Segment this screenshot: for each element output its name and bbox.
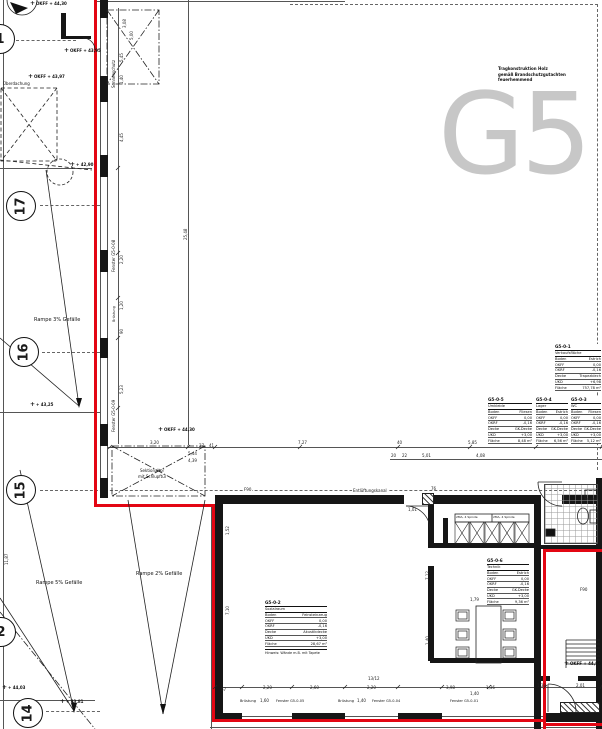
- dimension-label: 3,08: [123, 19, 128, 28]
- room-attr-key: OKFF: [536, 416, 545, 420]
- room-table-row: Fläche757,78 m²: [555, 385, 601, 391]
- annotation-label: Sonnenschutz: [112, 60, 117, 88]
- room-attr-key: Decke: [265, 630, 276, 634]
- room-attr-value: 757,78 m²: [582, 386, 601, 390]
- room-attr-key: Fläche: [536, 439, 548, 443]
- annotation-label: 2MA, 4 Spinde: [493, 516, 515, 519]
- level-marker: ++ 42,90: [70, 162, 93, 169]
- room-attr-key: OKFF: [488, 416, 497, 420]
- room-attr-key: Fläche: [487, 600, 499, 604]
- room-attr-key: Decke: [536, 427, 547, 431]
- grid-bubble-number: 15: [14, 481, 29, 499]
- dimension-label: 3,20: [150, 441, 159, 446]
- room-attr-value: 0,00: [560, 416, 568, 420]
- room-table-row: Fläche28,67 m²: [265, 641, 327, 647]
- room-attr-value: 8,48 m²: [518, 439, 532, 443]
- dimension-label: 2,20: [367, 686, 376, 691]
- room-attr-value: +3,00: [316, 636, 327, 640]
- dimension-label: 5,23: [120, 385, 125, 394]
- level-cross-icon: +: [158, 426, 163, 433]
- room-note: Hinweis: Wände m.B. mit Tapete: [265, 649, 327, 655]
- room-attr-value: Estrich: [589, 357, 601, 361]
- level-marker: +OKFF + 44,80: [564, 661, 601, 668]
- dimension-label: 5,45: [120, 53, 125, 62]
- annotation-label: F90: [243, 488, 252, 493]
- room-attr-key: OKFF: [571, 416, 580, 420]
- room-attr-value: 0,00: [524, 416, 532, 420]
- annotation-label: Sektionaltor: [140, 469, 164, 474]
- room-attr-value: +3,00: [557, 433, 568, 437]
- room-attr-key: UKD: [487, 594, 495, 598]
- room-table-row: Fläche6,56 m²: [536, 438, 568, 444]
- annotation-label: Rampe 5% Gefälle: [36, 581, 82, 587]
- room-attr-key: Decke: [571, 427, 582, 431]
- room-attr-value: 0,00: [319, 619, 327, 623]
- level-marker: ++ 44,03: [2, 685, 25, 692]
- room-attr-key: Fläche: [265, 642, 277, 646]
- dimension-label: 3,98: [446, 686, 455, 691]
- room-attr-value: Fliesen: [519, 410, 532, 414]
- dimension-label: 1,40: [470, 692, 479, 697]
- level-marker: +OKFF + 44,30: [30, 1, 67, 8]
- level-marker: +OKFF + 43,95: [64, 48, 101, 55]
- room-attr-key: Boden: [555, 357, 566, 361]
- room-attr-key: OKFF: [487, 577, 496, 581]
- room-attr-value: GK-Decke: [551, 427, 568, 431]
- level-marker: +OKFF + 44,30: [158, 427, 195, 434]
- room-attr-value: Estrich: [517, 571, 529, 575]
- room-attr-value: Estrich: [556, 410, 568, 414]
- dimension-label: 5,00: [130, 31, 135, 40]
- room-attr-value: +3,00: [518, 594, 529, 598]
- room-attr-value: +6,98: [590, 380, 601, 384]
- dimension-label: 1,40: [357, 699, 366, 704]
- dimension-label: 4,45: [120, 133, 125, 142]
- room-attr-key: OKRF: [265, 624, 275, 628]
- annotation-label: Brüstung: [240, 699, 256, 703]
- room-attr-value: -0,16: [318, 624, 327, 628]
- room-attr-key: Fläche: [571, 439, 583, 443]
- room-attr-key: OKRF: [571, 421, 581, 425]
- dimension-label: 2,20: [120, 255, 125, 264]
- level-value: OKFF + 44,80: [570, 661, 601, 666]
- dimension-label: 1,40: [426, 636, 431, 645]
- room-attr-key: UKD: [265, 636, 273, 640]
- level-cross-icon: +: [64, 47, 69, 54]
- dimension-label: 1,38: [537, 684, 546, 689]
- dimension-label: 27: [199, 444, 204, 449]
- dimension-label: 1,52: [226, 526, 231, 535]
- grid-bubble-number: 14: [21, 704, 36, 722]
- dimension-label: 4,39: [188, 459, 197, 464]
- room-attr-key: Fläche: [555, 386, 567, 390]
- annotation-label: Rampe 3% Gefälle: [34, 318, 80, 324]
- dimension-label: 5,44: [188, 452, 197, 457]
- room-attr-value: +3,00: [590, 433, 601, 437]
- room-attr-value: -0,16: [523, 421, 532, 425]
- room-table-row: Fläche5,12 m²: [571, 438, 601, 444]
- dimension-label: 1,01: [408, 508, 417, 513]
- dimension-label: 41: [209, 444, 214, 449]
- level-marker: ++ 43,81: [60, 699, 83, 706]
- room-attr-value: Akustikdecke: [303, 630, 327, 634]
- level-value: + 43,25: [36, 402, 53, 407]
- room-attr-key: UKD: [571, 433, 579, 437]
- room-attr-value: 0,00: [593, 416, 601, 420]
- room-attr-value: 0,00: [521, 577, 529, 581]
- room-attr-value: GK-Decke: [584, 427, 601, 431]
- room-attr-key: UKD: [536, 433, 544, 437]
- room-attr-key: Boden: [265, 613, 276, 617]
- grid-bubble-16: 16: [9, 337, 39, 367]
- dimension-label: 11,87: [5, 554, 10, 565]
- grid-bubble-14: 14: [13, 698, 43, 728]
- room-attr-key: OKRF: [488, 421, 498, 425]
- dimension-label: 2,60: [310, 686, 319, 691]
- annotation-label: Fenster G5-0-08: [112, 240, 117, 272]
- annotation-label: Überdachung: [3, 82, 30, 87]
- dimension-label: 7,12: [426, 571, 431, 580]
- grid-bubble-17: 17: [6, 191, 36, 221]
- room-table-G5-0-2: G5-0-2SozialraumBodenFeinsteinzeugOKFF0,…: [265, 600, 327, 655]
- room-table-row: Fläche9,36 m²: [487, 599, 529, 605]
- dimension-label: 1,40: [120, 75, 125, 84]
- room-attr-value: 28,67 m²: [311, 642, 327, 646]
- room-attr-key: UKD: [555, 380, 563, 384]
- annotation-label: Brüstung: [338, 699, 354, 703]
- construction-note: Tragkonstruktion Holz gemäß Brandschutzg…: [498, 66, 566, 83]
- level-value: OKFF + 43,97: [34, 74, 65, 79]
- room-attr-value: GK-Decke: [515, 427, 532, 431]
- dimension-label: 90: [120, 329, 125, 334]
- room-attr-value: 9,36 m²: [515, 600, 529, 604]
- dimension-label: 1,20: [120, 301, 125, 310]
- level-cross-icon: +: [564, 660, 569, 667]
- dimension-label: 40: [397, 441, 402, 446]
- dimension-label: 5,01: [422, 454, 431, 459]
- room-attr-key: OKRF: [536, 421, 546, 425]
- grid-bubble-15: 15: [6, 475, 36, 505]
- annotation-label: F90: [580, 588, 587, 593]
- annotation-label: Fenster G5-0-04: [372, 699, 400, 703]
- level-value: OKFF + 44,30: [164, 427, 195, 432]
- room-table-G5-0-3: G5-0-3WCBodenFliesenOKFF0,00OKRF-0,16Dec…: [571, 397, 601, 444]
- annotation-label: Brüstung: [112, 306, 116, 322]
- room-attr-value: 6,56 m²: [554, 439, 568, 443]
- level-value: + 42,90: [76, 162, 93, 167]
- annotation-label: Entlüftungskanal: [352, 489, 388, 494]
- dimension-label: 67: [221, 688, 226, 693]
- dimension-label: 1,60: [260, 699, 269, 704]
- room-attr-key: Decke: [488, 427, 499, 431]
- dimension-label: 22: [402, 454, 407, 459]
- level-value: OKFF + 44,30: [36, 1, 67, 6]
- room-table-G5-0-6: G5-0-6TechnikBodenEstrichOKFF0,00OKRF-0,…: [487, 558, 529, 605]
- dimension-label: 7,10: [226, 606, 231, 615]
- level-cross-icon: +: [30, 0, 35, 7]
- level-marker: ++ 43,25: [30, 402, 53, 409]
- level-cross-icon: +: [70, 161, 75, 168]
- room-table-G5-0-1: G5-0-1VerkaufsflächeBodenEstrichOKFF0,00…: [555, 344, 601, 391]
- room-attr-key: OKRF: [487, 582, 497, 586]
- floor-plan-canvas: G5 Tragkonstruktion Holz gemäß Brandschu…: [0, 0, 602, 729]
- room-attr-key: Boden: [536, 410, 547, 414]
- room-attr-value: Feinsteinzeug: [302, 613, 327, 617]
- zone-label-g5: G5: [438, 70, 588, 200]
- dimension-label: 25,48: [184, 229, 189, 240]
- dimension-label: 76: [431, 487, 436, 492]
- room-attr-value: Fliesen: [588, 410, 601, 414]
- grid-bubble-number: 2: [0, 625, 6, 640]
- room-table-G5-0-4: G5-0-4LagerBodenEstrichOKFF0,00OKRF-0,16…: [536, 397, 568, 444]
- room-attr-value: 5,12 m²: [587, 439, 601, 443]
- level-cross-icon: +: [60, 698, 65, 705]
- dimension-label: 1,79: [470, 598, 479, 603]
- level-value: + 44,03: [8, 685, 25, 690]
- grid-bubble-number: 17: [14, 197, 29, 215]
- dimension-label: 5,85: [468, 441, 477, 446]
- grid-bubble-number: 16: [17, 343, 32, 361]
- dimension-label: 4,08: [476, 454, 485, 459]
- room-table-G5-0-5: G5-0-5UmkleideBodenFliesenOKFF0,00OKRF-0…: [488, 397, 532, 444]
- room-table-row: Fläche8,48 m²: [488, 438, 532, 444]
- room-attr-value: -0,16: [592, 368, 601, 372]
- annotation-label: 2MA, 4 Spinde: [456, 516, 478, 519]
- room-attr-value: Trapezblech: [580, 374, 601, 378]
- room-attr-key: Boden: [487, 571, 498, 575]
- room-attr-value: -0,16: [592, 421, 601, 425]
- room-attr-value: -0,16: [559, 421, 568, 425]
- level-cross-icon: +: [28, 73, 33, 80]
- annotation-label: mit Schlupftür: [138, 475, 166, 480]
- room-attr-key: OKFF: [265, 619, 274, 623]
- level-cross-icon: +: [2, 684, 7, 691]
- room-attr-key: UKD: [488, 433, 496, 437]
- annotation-label: Fenster G5-0-01: [450, 699, 478, 703]
- room-attr-value: +3,00: [521, 433, 532, 437]
- room-attr-key: Boden: [571, 410, 582, 414]
- construction-note-line3: feuerhemmend: [498, 77, 566, 83]
- room-attr-key: Boden: [488, 410, 499, 414]
- room-attr-key: OKRF: [555, 368, 565, 372]
- dimension-label: 7,27: [298, 441, 307, 446]
- room-attr-key: Fläche: [488, 439, 500, 443]
- room-attr-key: Decke: [487, 588, 498, 592]
- room-attr-key: OKFF: [555, 363, 564, 367]
- level-cross-icon: +: [30, 401, 35, 408]
- room-attr-value: -0,16: [520, 582, 529, 586]
- level-value: OKFF + 43,95: [70, 48, 101, 53]
- annotation-label: Rampe 2% Gefälle: [136, 572, 182, 578]
- room-attr-key: Decke: [555, 374, 566, 378]
- level-value: + 43,81: [66, 699, 83, 704]
- room-attr-value: 0,00: [593, 363, 601, 367]
- annotation-label: Fenster G5-0-09: [112, 400, 117, 432]
- room-attr-value: GK-Decke: [512, 588, 529, 592]
- dimension-label: 1,36: [486, 686, 495, 691]
- dimension-label: 13/12: [368, 677, 380, 682]
- dimension-label: 2,01: [576, 684, 585, 689]
- annotation-label: Fenster G5-0-05: [276, 699, 304, 703]
- dimension-label: 20: [391, 454, 396, 459]
- level-marker: +OKFF + 43,97: [28, 74, 65, 81]
- dimension-label: 2,20: [263, 686, 272, 691]
- grid-bubble-number: 1: [0, 32, 5, 47]
